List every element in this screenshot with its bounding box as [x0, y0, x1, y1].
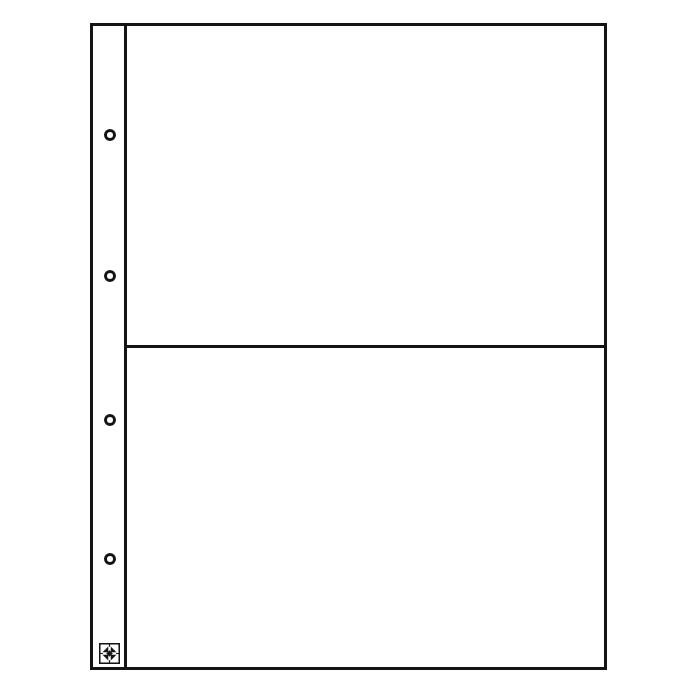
- pocket-1: [127, 26, 604, 345]
- punch-hole-2: [104, 270, 116, 282]
- punch-hole-4: [104, 553, 116, 565]
- compass-diamond-logo-icon: [99, 643, 120, 664]
- punch-hole-1: [104, 129, 116, 141]
- pocket-2: [127, 348, 604, 667]
- binding-strip: [93, 26, 127, 667]
- punch-hole-3: [104, 414, 116, 426]
- product-photo-canvas: [0, 0, 700, 700]
- album-page-sheet: [90, 23, 607, 670]
